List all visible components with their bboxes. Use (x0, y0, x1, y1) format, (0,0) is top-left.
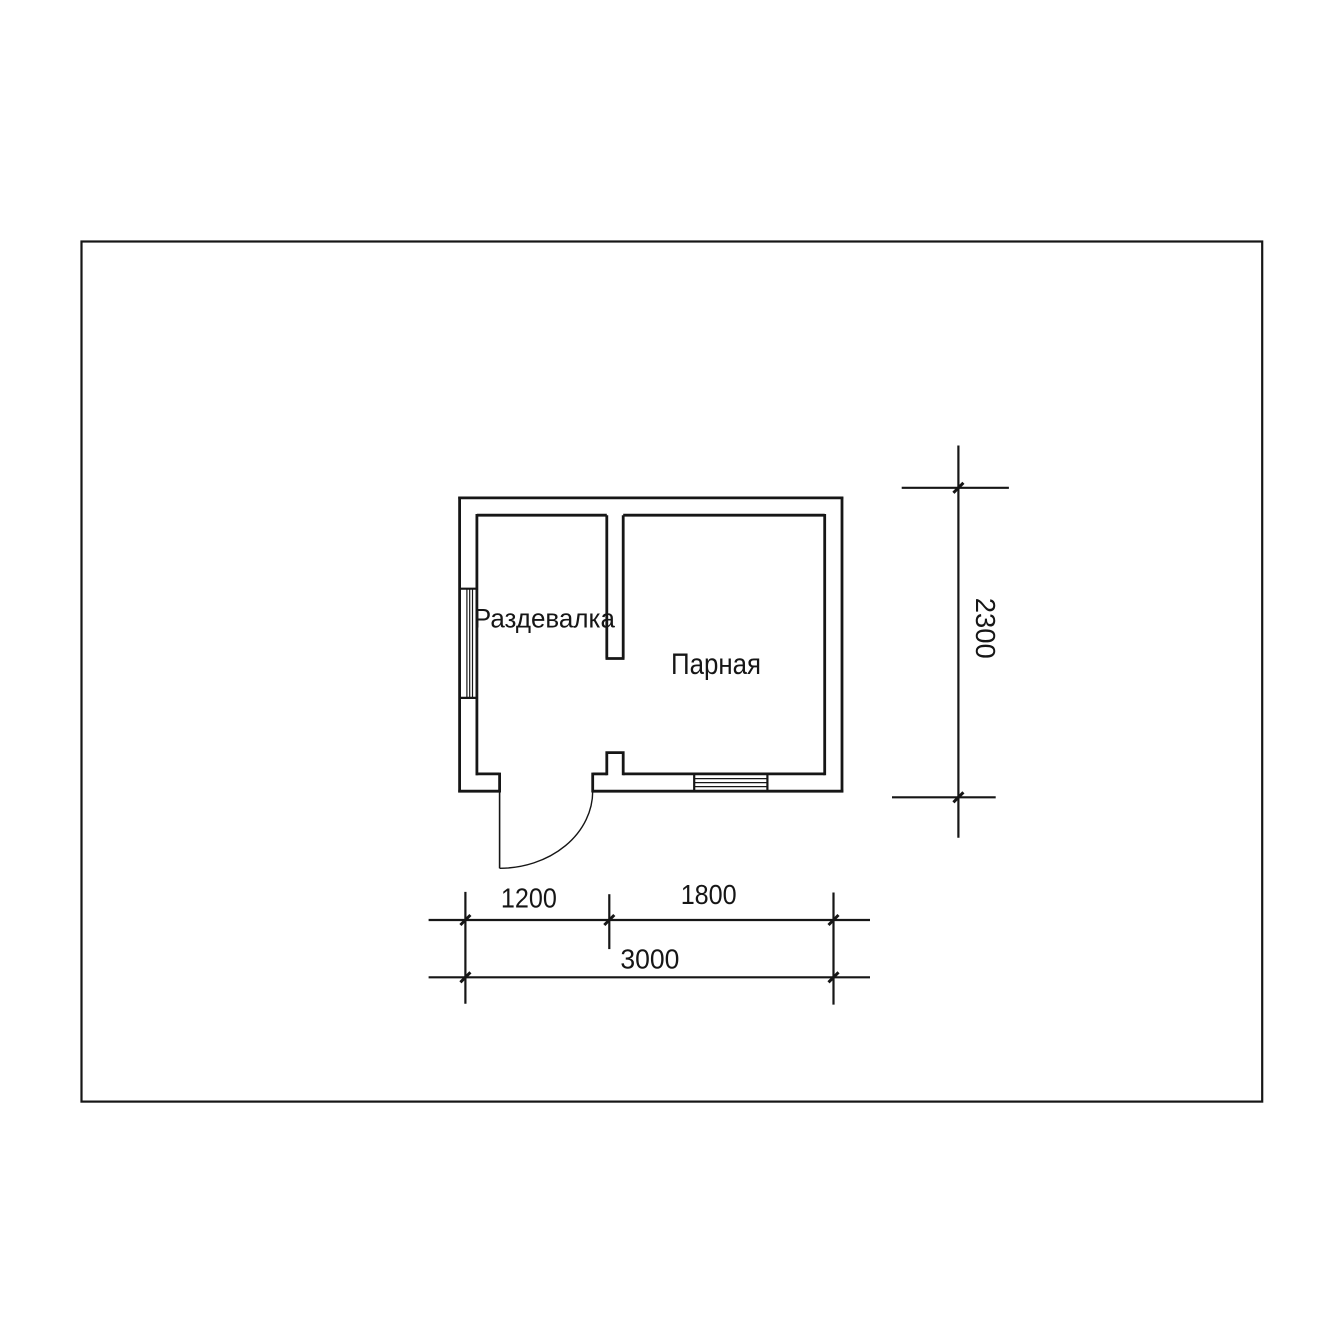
svg-text:2300: 2300 (970, 598, 1001, 659)
svg-text:3000: 3000 (620, 944, 679, 975)
svg-text:1800: 1800 (681, 879, 737, 910)
svg-text:Раздевалка: Раздевалка (474, 603, 616, 633)
svg-text:1200: 1200 (501, 883, 557, 914)
svg-text:Парная: Парная (671, 648, 761, 681)
